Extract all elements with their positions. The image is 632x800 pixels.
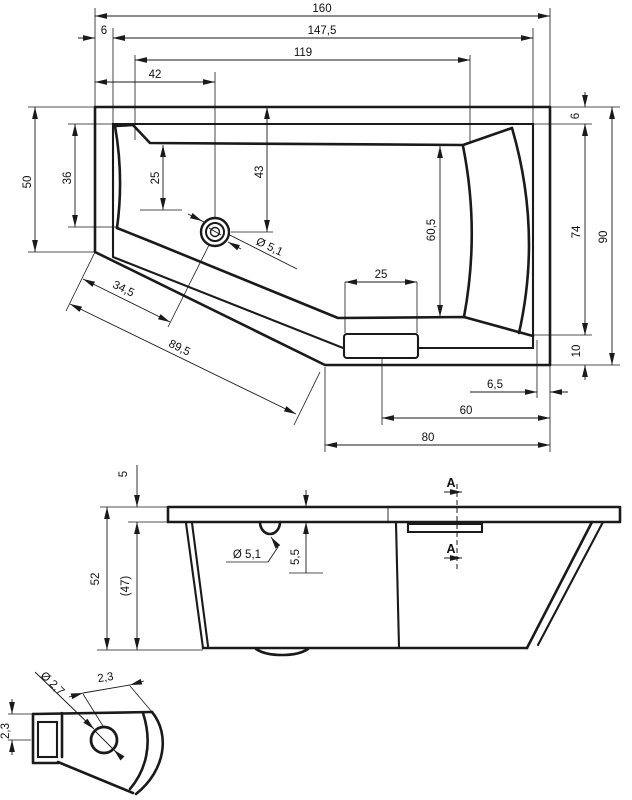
detail-view: Ø 2,7 2,3 2,3 [0,670,163,794]
label-left-rim-offset: 6 [101,25,107,37]
detail-outer-arc [136,712,163,794]
hole-arrow [114,750,122,758]
label-seat-block: 25 [375,269,388,281]
label-backrest: 25 [150,172,162,185]
label-hole-diameter: Ø 2,7 [38,670,67,698]
label-outlet-offset: 6,5 [487,379,503,391]
detail-bottom-slant [58,762,133,793]
left-wall [186,523,208,648]
label-diag-total: 89,5 [167,338,192,359]
bottom-drain-bump [256,649,308,655]
label-section-a-top: A [446,476,455,490]
bathtub-drawing: 160 6 147,5 119 42 50 36 25 43 Ø 5,1 60,… [0,0,632,800]
side-view: 5 52 (47) Ø 5,1 5,5 A A [90,465,620,655]
label-section-a-bottom: A [446,542,455,556]
headrest-curve-left [463,146,472,317]
label-hole-offset-diag: 2,3 [97,671,115,685]
extension-lines [28,8,620,452]
detail-top-edge [33,712,152,714]
label-drain-x: 42 [149,69,162,81]
label-inner-width: 147,5 [308,25,337,37]
technical-drawing-page: 160 6 147,5 119 42 50 36 25 43 Ø 5,1 60,… [0,0,632,800]
label-diag-drain: 34,5 [111,279,136,300]
right-wall-inner [538,522,603,645]
label-rim-thickness: 5 [118,471,130,477]
label-seat-to-edge: 60 [460,405,473,417]
label-total-width: 160 [312,3,331,15]
label-inner-height: (47) [120,576,132,597]
label-right-offset-bottom: 10 [571,345,583,358]
overflow-loop [260,522,280,534]
drain-arrow [188,214,202,221]
label-right-total: 90 [598,231,610,244]
overflow-leader [268,547,278,562]
drain-arrow [228,242,241,249]
label-overflow-depth: 5,5 [290,549,302,565]
label-right-offset-top: 6 [570,113,582,119]
label-overflow-diameter: Ø 5,1 [233,549,261,561]
dim-diag-arrow [130,681,144,685]
label-drain-y: 43 [254,166,266,179]
headrest-curve-right [512,128,529,333]
seat-recess [408,524,482,532]
tub-inner-rim [113,124,533,348]
overflow-arrow [271,537,278,547]
rim-profile [168,507,620,522]
label-hole-offset-vert: 2,3 [0,723,12,739]
dim-diag-line [83,685,130,693]
dim-diag-total [70,304,296,414]
label-basin-width: 119 [294,47,312,59]
label-basin-height: 60,5 [426,219,438,241]
label-total-height: 52 [90,573,102,586]
seat-step-block [344,334,418,358]
backrest-curve [115,126,120,228]
label-left-inner: 36 [62,172,74,185]
label-left-end: 50 [22,176,34,189]
diag-extension-lines [83,686,152,726]
internal-divider-wall [396,523,399,647]
label-right-inner: 74 [571,225,583,238]
basin-top-edge [115,125,512,145]
dim-diag-arrow [69,693,83,697]
detail-inner-arc [130,713,148,789]
right-wall-outer [527,522,592,648]
plan-view: 160 6 147,5 119 42 50 36 25 43 Ø 5,1 60,… [22,3,620,452]
label-bottom-width: 80 [422,432,435,444]
detail-channel-notch [38,722,57,757]
